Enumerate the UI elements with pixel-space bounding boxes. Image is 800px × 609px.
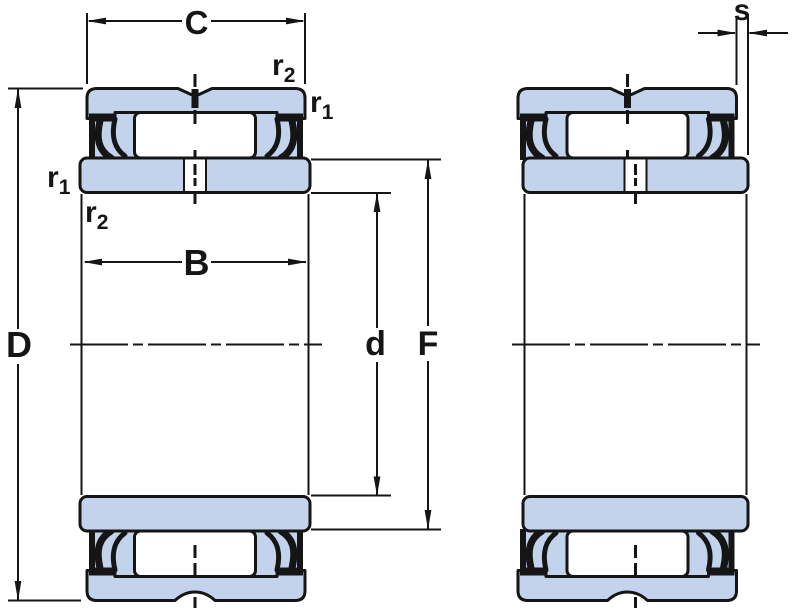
arrowhead-left <box>83 259 102 266</box>
arrowhead-right <box>286 18 305 25</box>
dim-label-r2-top-right: r2 <box>272 49 295 87</box>
arrowhead-left <box>748 30 767 37</box>
left-bearing-view <box>80 74 310 608</box>
dim-label-r1-left: r1 <box>47 161 71 199</box>
arrowhead-down <box>374 477 381 496</box>
lubrication-hole <box>192 89 199 108</box>
inner-ring <box>523 497 748 532</box>
upper-half-section <box>80 89 310 193</box>
dim-label-s: s <box>734 0 751 27</box>
arrowhead-up <box>425 160 432 180</box>
dim-label-r2-bottom-left: r2 <box>85 196 108 234</box>
arrowhead-left <box>87 18 106 25</box>
arrowhead-right <box>288 259 307 266</box>
right-bearing-view <box>518 74 748 608</box>
dimension-d: d <box>311 193 391 496</box>
upper-half-section <box>518 89 748 193</box>
roller-set <box>567 531 688 577</box>
arrowhead-down <box>425 510 432 530</box>
lubrication-hole <box>624 89 631 108</box>
dim-label-r1-right: r1 <box>310 86 334 124</box>
arrowhead-right <box>718 30 737 37</box>
bearing-diagram: C B D d F s r2 r1 r1 <box>0 0 800 609</box>
arrowhead-down <box>15 581 22 601</box>
arrowhead-up <box>374 193 381 212</box>
dim-label-C: C <box>185 4 209 41</box>
lower-half-section <box>518 497 748 601</box>
dimension-B: B <box>83 242 307 283</box>
dim-label-D: D <box>6 324 32 365</box>
inner-ring <box>80 497 310 532</box>
bearing-diagram-svg: C B D d F s r2 r1 r1 <box>0 0 800 609</box>
dim-label-F: F <box>418 325 439 363</box>
dim-label-d: d <box>365 325 386 363</box>
extension-lines-s <box>737 17 749 155</box>
arrowhead-up <box>15 89 22 109</box>
dim-label-B: B <box>184 242 210 283</box>
